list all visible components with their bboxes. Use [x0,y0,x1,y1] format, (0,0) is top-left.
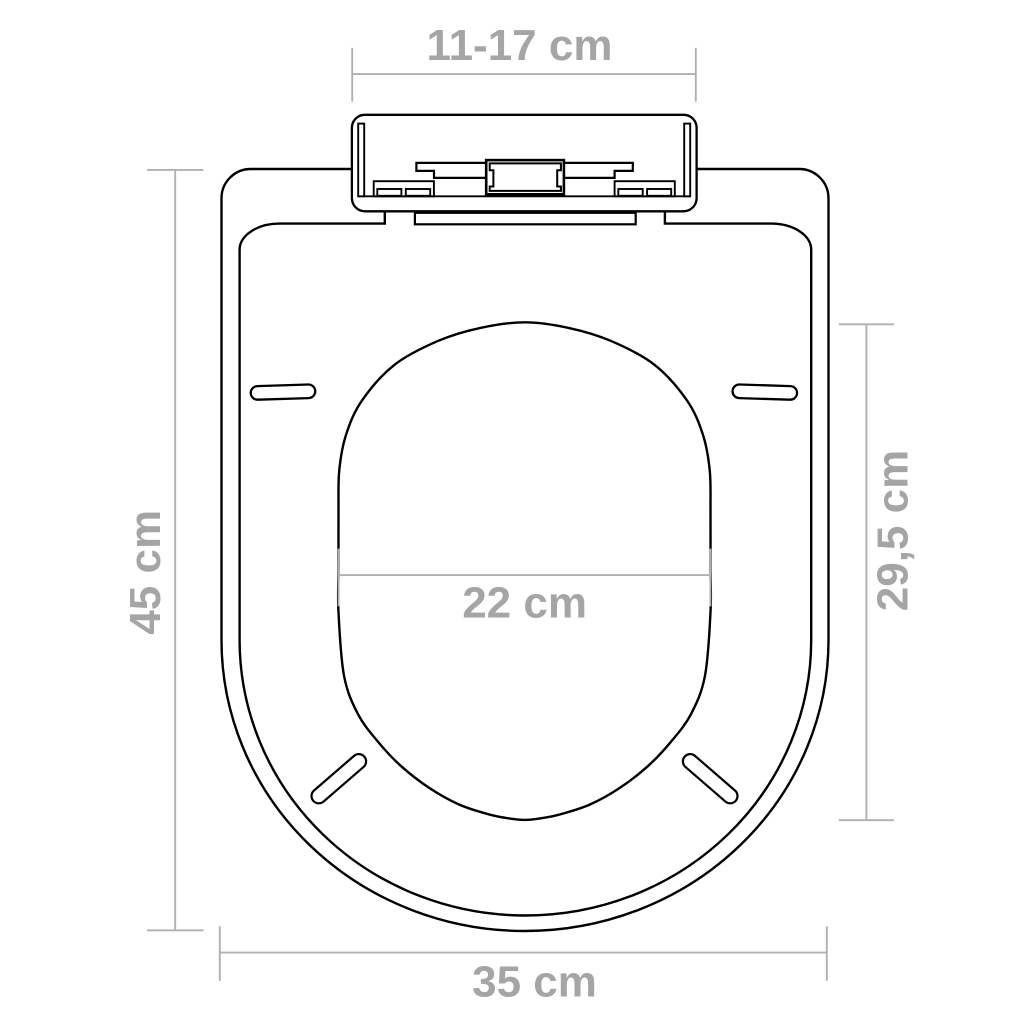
svg-text:45 cm: 45 cm [121,510,170,635]
svg-text:22 cm: 22 cm [462,578,587,627]
svg-text:11-17 cm: 11-17 cm [427,21,613,70]
svg-text:35 cm: 35 cm [472,958,597,1007]
svg-text:29,5 cm: 29,5 cm [868,450,917,611]
